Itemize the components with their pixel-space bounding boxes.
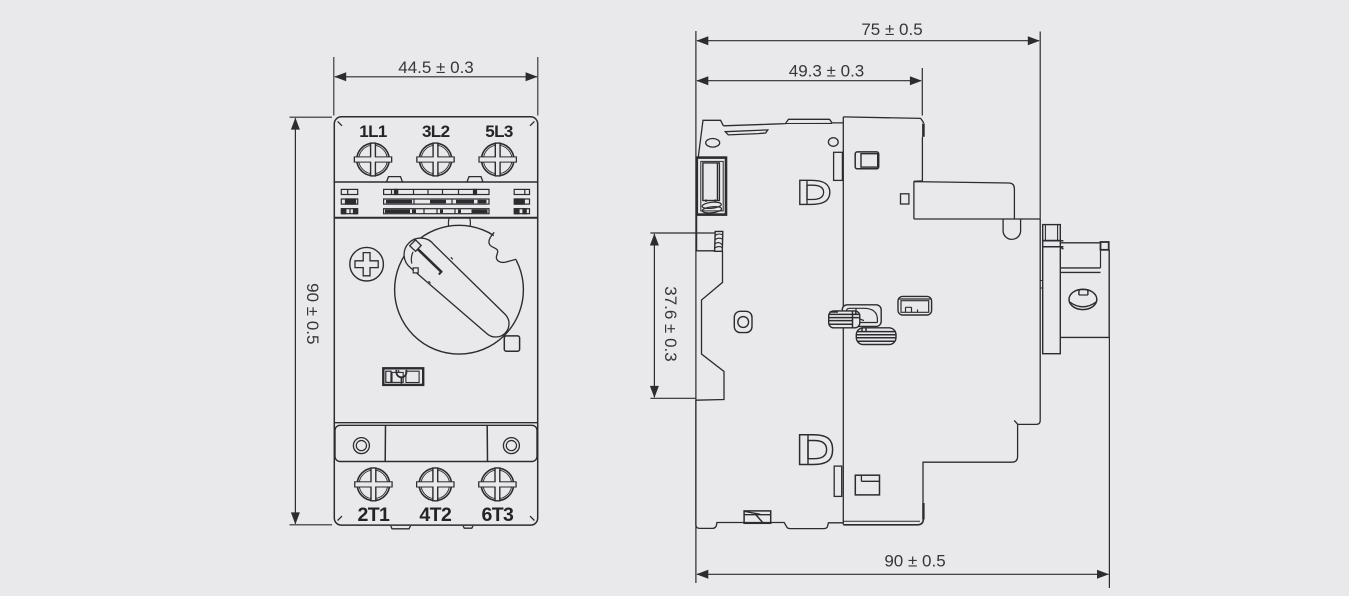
svg-text:1L1: 1L1 [359,122,387,141]
svg-text:90 ± 0.5: 90 ± 0.5 [303,283,322,344]
svg-text:90 ± 0.5: 90 ± 0.5 [884,552,945,571]
svg-text:37.6 ± 0.3: 37.6 ± 0.3 [661,286,680,362]
svg-text:75 ± 0.5: 75 ± 0.5 [861,20,922,39]
svg-text:4T2: 4T2 [419,504,452,526]
svg-text:6T3: 6T3 [481,504,514,526]
svg-text:44.5 ± 0.3: 44.5 ± 0.3 [398,58,474,77]
svg-text:3L2: 3L2 [422,122,450,141]
svg-text:2T1: 2T1 [357,504,390,526]
svg-text:49.3 ± 0.3: 49.3 ± 0.3 [789,62,865,81]
svg-text:5L3: 5L3 [485,122,513,141]
